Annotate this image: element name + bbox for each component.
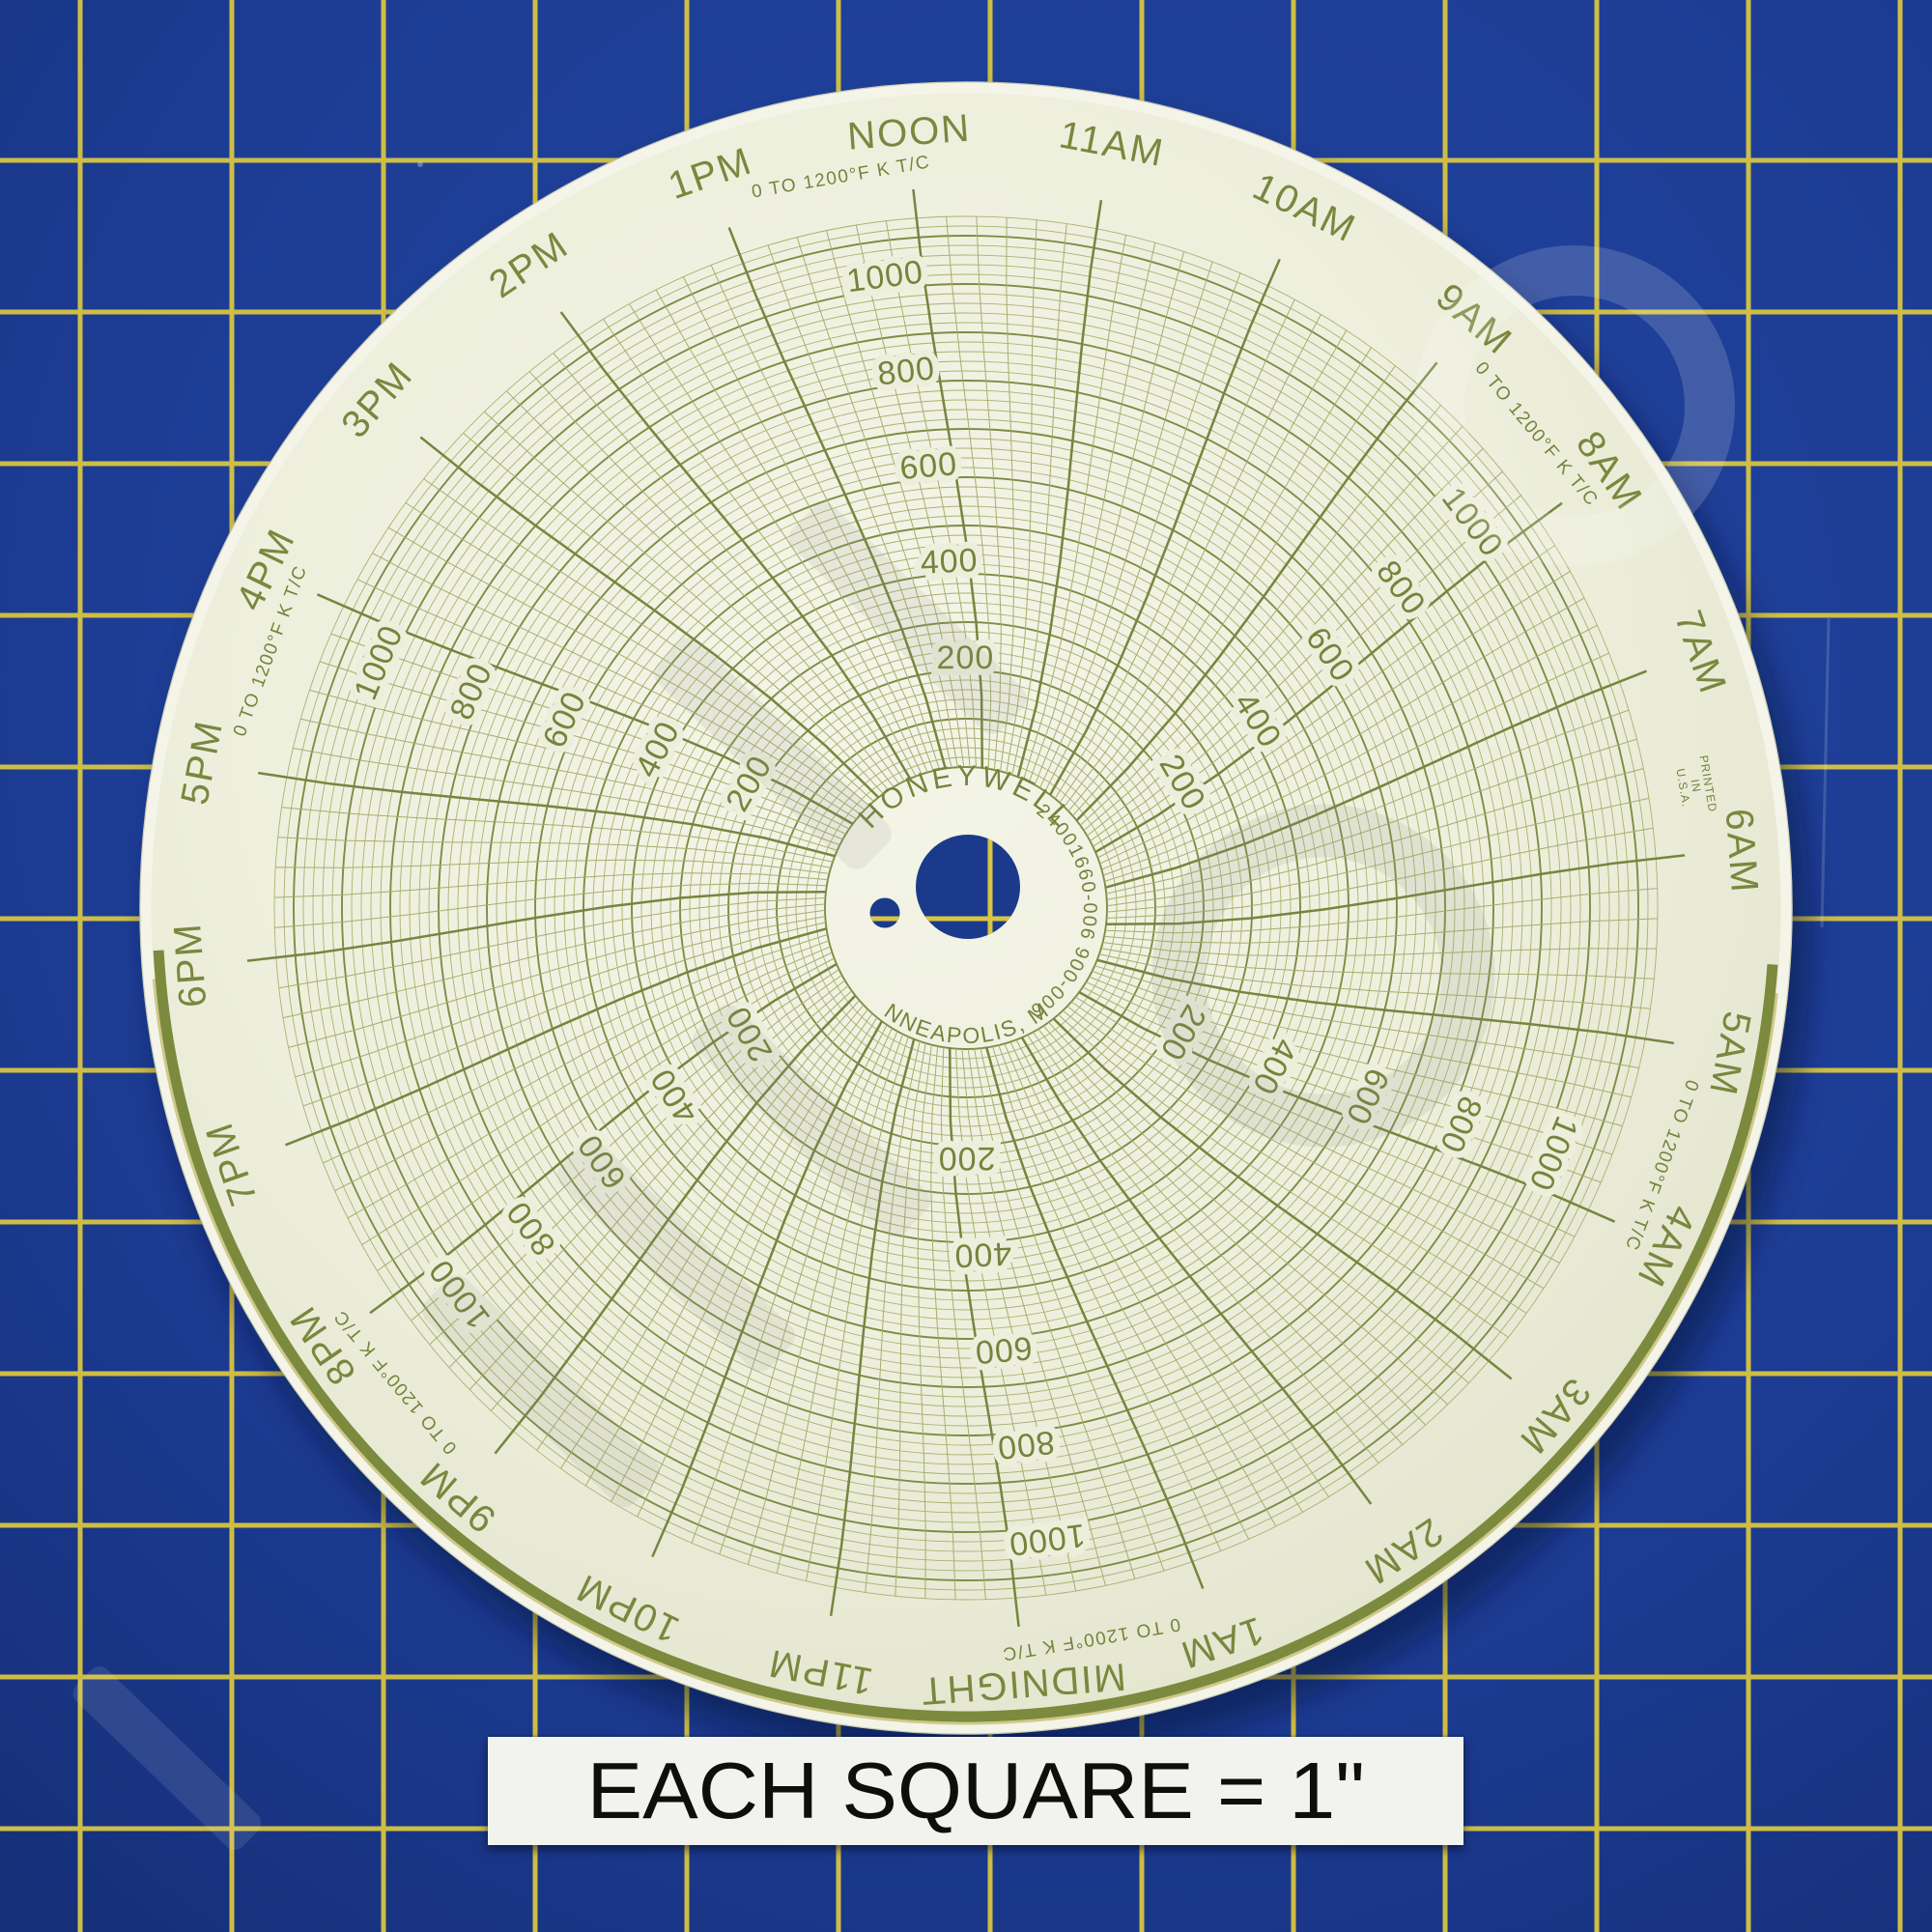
value-tick-label: 400 — [953, 1235, 1012, 1274]
photo-stage: 2004006008001000200400600800100020040060… — [0, 0, 1932, 1932]
value-tick-label: 400 — [920, 542, 979, 582]
value-tick-label: 200 — [938, 1140, 996, 1177]
value-tick-label: 600 — [973, 1329, 1034, 1371]
punched-hole — [870, 898, 900, 928]
hour-label: NOON — [846, 107, 973, 158]
punched-hole — [916, 835, 1020, 939]
value-tick-label: 800 — [875, 350, 937, 392]
hour-label: 6AM — [1718, 808, 1766, 895]
value-tick-label: 800 — [995, 1423, 1057, 1465]
value-tick-label: 600 — [898, 445, 959, 487]
scale-sticker: EACH SQUARE = 1" — [488, 1737, 1463, 1845]
sticker-text: EACH SQUARE = 1" — [586, 1745, 1364, 1837]
mat-scuff — [417, 161, 423, 167]
chart-photo: 2004006008001000200400600800100020040060… — [0, 0, 1932, 1932]
hour-label: 6PM — [166, 921, 214, 1009]
